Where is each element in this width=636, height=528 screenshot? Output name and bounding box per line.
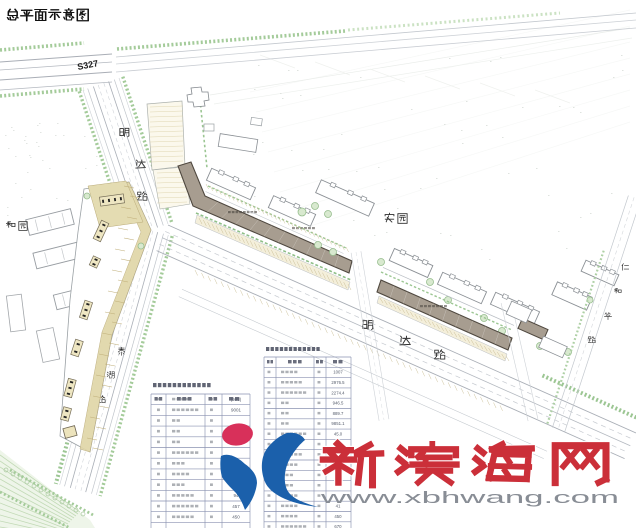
svg-text:(993): (993) bbox=[231, 397, 242, 402]
svg-text:946.5: 946.5 bbox=[333, 401, 344, 406]
svg-text:450: 450 bbox=[232, 515, 240, 520]
svg-text:45.0: 45.0 bbox=[334, 432, 343, 437]
svg-text:9001: 9001 bbox=[231, 408, 242, 413]
svg-text:670: 670 bbox=[334, 524, 342, 528]
svg-text:2274.4: 2274.4 bbox=[331, 390, 345, 395]
svg-text:889.7: 889.7 bbox=[333, 411, 344, 416]
svg-text:1007: 1007 bbox=[333, 370, 343, 375]
svg-text:www.xbhwang.com: www.xbhwang.com bbox=[319, 489, 619, 507]
svg-text:2976.5: 2976.5 bbox=[331, 380, 345, 385]
svg-text:450: 450 bbox=[334, 514, 342, 519]
svg-text:457: 457 bbox=[232, 504, 240, 509]
svg-text:9851.1: 9851.1 bbox=[331, 421, 345, 426]
